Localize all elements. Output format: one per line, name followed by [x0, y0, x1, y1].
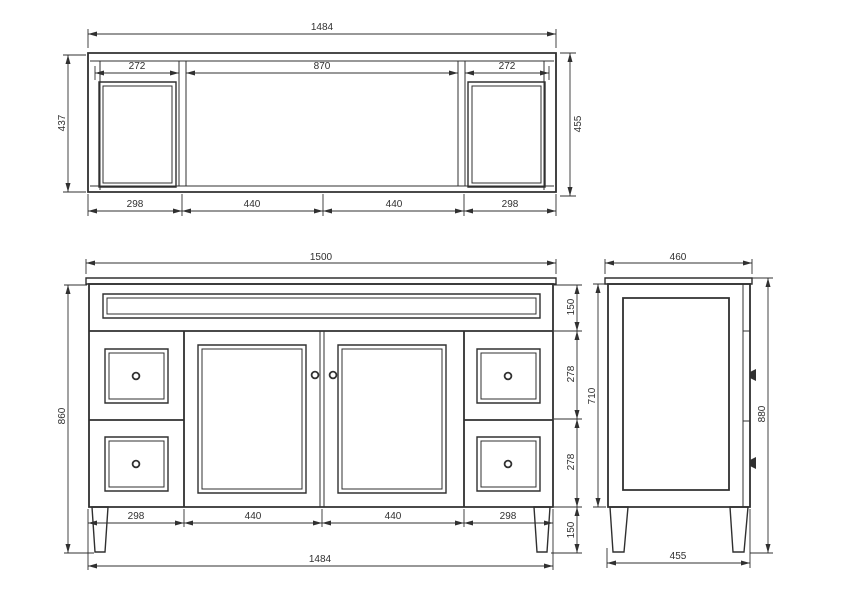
front-left-leg	[92, 507, 108, 552]
front-structure-lines	[89, 331, 553, 507]
front-left-lower-drawer-knob	[133, 461, 140, 468]
plan-inner-lines	[90, 61, 554, 190]
side-dim-overall-height: 880	[757, 405, 768, 422]
plan-dim-seg3: 440	[386, 199, 403, 210]
front-dim-seg2: 440	[245, 511, 262, 522]
front-right-lower-drawer-knob	[505, 461, 512, 468]
plan-right-drawer-box-inner	[472, 86, 541, 183]
front-dim-leg-height: 150	[566, 521, 577, 538]
front-left-upper-drawer-knob	[133, 373, 140, 380]
plan-view: 1484 272 870 272 437 455 298 440 440 298	[57, 22, 584, 216]
vanity-technical-drawing: 1484 272 870 272 437 455 298 440 440 298	[0, 0, 842, 595]
plan-dim-outer-depth: 455	[573, 115, 584, 132]
front-dim-seg3: 440	[385, 511, 402, 522]
front-right-upper-drawer-knob	[505, 373, 512, 380]
side-view: 460 710 880 455	[587, 252, 773, 568]
plan-dim-center-opening: 870	[314, 61, 331, 72]
front-right-door-knob	[330, 372, 337, 379]
side-dim-base-depth: 455	[670, 551, 687, 562]
side-dim-body-height: 710	[587, 387, 598, 404]
front-door-panels	[198, 345, 446, 493]
front-dim-cabinet-width: 1484	[309, 554, 332, 565]
plan-extension-lines	[63, 29, 576, 216]
front-door-gap	[320, 331, 324, 507]
plan-dim-inner-depth: 437	[57, 114, 68, 131]
plan-dim-right-opening: 272	[499, 61, 516, 72]
front-dim-seg4: 298	[500, 511, 517, 522]
front-dim-lower-drawer-height: 278	[566, 453, 577, 470]
plan-carcass-outline	[88, 53, 556, 192]
plan-left-drawer-box	[99, 82, 176, 187]
front-left-door-knob	[312, 372, 319, 379]
side-front-leg	[730, 507, 748, 552]
plan-dim-left-opening: 272	[129, 61, 146, 72]
front-dim-overall-height: 860	[57, 407, 68, 424]
front-apron-panel-inner	[107, 298, 536, 314]
front-dim-seg1: 298	[128, 511, 145, 522]
side-inset-panel	[623, 298, 729, 490]
plan-dividers	[179, 61, 465, 186]
front-dim-benchtop-width: 1500	[310, 252, 333, 263]
side-back-leg	[610, 507, 628, 552]
plan-dim-seg1: 298	[127, 199, 144, 210]
front-door-panels-inner	[202, 349, 442, 489]
plan-dim-overall-width: 1484	[311, 22, 334, 33]
drawing-canvas: 1484 272 870 272 437 455 298 440 440 298	[0, 0, 842, 595]
front-right-leg	[534, 507, 550, 552]
front-dim-apron-height: 150	[566, 298, 577, 315]
plan-right-drawer-box	[468, 82, 545, 187]
plan-dim-seg4: 298	[502, 199, 519, 210]
plan-left-drawer-box-inner	[103, 86, 172, 183]
side-front-edge-lines	[743, 284, 750, 507]
front-view: 1500 860 150 278 278 150 298 440 440 298…	[57, 252, 582, 570]
front-dim-upper-drawer-height: 278	[566, 365, 577, 382]
plan-dim-seg2: 440	[244, 199, 261, 210]
side-dim-benchtop-depth: 460	[670, 252, 687, 263]
